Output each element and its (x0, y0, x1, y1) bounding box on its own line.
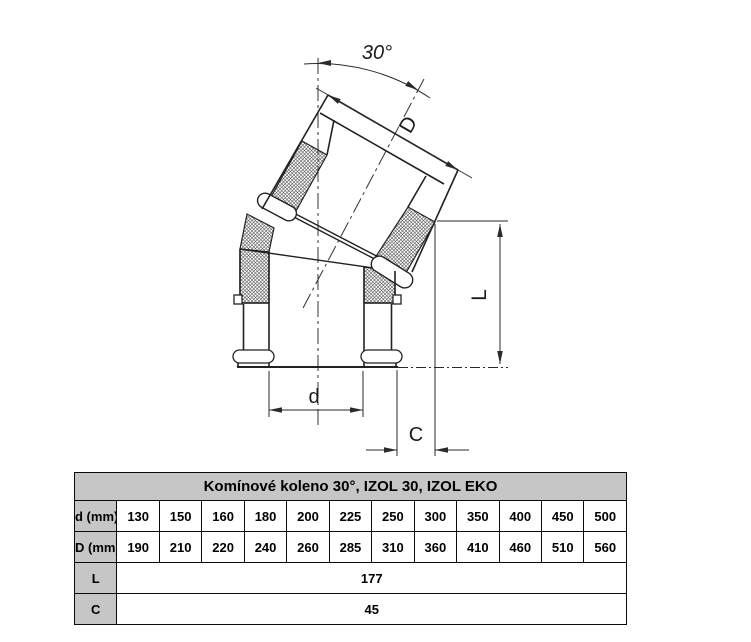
upper-miter-seam-line1 (288, 210, 388, 262)
table-cell: 360 (414, 532, 456, 563)
dimension-angle (304, 64, 430, 98)
table-cell: 150 (159, 501, 201, 532)
left-crimp-bump (234, 295, 242, 304)
elbow-technical-drawing: 30° D L d C (0, 0, 751, 470)
outer-diameter-label: D (395, 112, 423, 137)
table-cell: 350 (457, 501, 499, 532)
offset-label: C (409, 424, 423, 446)
angle-arrow-left (318, 60, 331, 66)
upper-inner-end (320, 113, 444, 184)
page: { "drawing": { "angle_label": "30°", "di… (0, 0, 751, 642)
bottom-right-bead (361, 350, 402, 363)
l-arrow-down (497, 351, 503, 364)
row-label-d: d (mm) vnitřní průměr: (75, 501, 117, 532)
table-cell: 450 (541, 501, 583, 532)
table-cell: 560 (584, 532, 627, 563)
d-outer-arrow-left (328, 95, 341, 104)
table-row-length: L 177 (75, 563, 627, 594)
right-crimp-bump (393, 295, 401, 304)
table-row-inner-diameter: d (mm) vnitřní průměr: 130 150 160 180 2… (75, 501, 627, 532)
table-cell: 285 (329, 532, 371, 563)
row-label-D: D (mm) vnější průměr: (75, 532, 117, 563)
l-arrow-up (497, 224, 503, 237)
angle-arc (304, 64, 430, 98)
table-cell: 225 (329, 501, 371, 532)
bottom-left-bead (233, 350, 274, 363)
table-cell: 210 (159, 532, 201, 563)
table-cell: 400 (499, 501, 541, 532)
c-arrow-right (435, 447, 448, 453)
table-cell: 190 (117, 532, 159, 563)
table-row-offset: C 45 (75, 594, 627, 625)
table-cell: 260 (287, 532, 329, 563)
d-arrow-left (269, 407, 282, 413)
lower-left-wall (240, 249, 269, 303)
length-value: 177 (117, 563, 627, 594)
table-cell: 200 (287, 501, 329, 532)
table-cell: 160 (202, 501, 244, 532)
table-row-outer-diameter: D (mm) vnější průměr: 190 210 220 240 26… (75, 532, 627, 563)
table-cell: 410 (457, 532, 499, 563)
table-title: Komínové koleno 30°, IZOL 30, IZOL EKO (75, 473, 627, 501)
d-arrow-right (350, 407, 363, 413)
table-cell: 240 (244, 532, 286, 563)
table-cell: 220 (202, 532, 244, 563)
table-cell: 300 (414, 501, 456, 532)
offset-value: 45 (117, 594, 627, 625)
upper-right-inner-edge (408, 176, 426, 207)
upper-left-inner-edge (327, 120, 334, 155)
length-label: L (468, 289, 491, 301)
row-label-L: L (75, 563, 117, 594)
table-cell: 310 (372, 532, 414, 563)
inner-diameter-label: d (308, 386, 319, 408)
table-cell: 180 (244, 501, 286, 532)
table-cell: 510 (541, 532, 583, 563)
table-cell: 130 (117, 501, 159, 532)
row-label-C: C (75, 594, 117, 625)
angle-arrow-right (405, 81, 418, 90)
d-outer-arrow-right (445, 161, 458, 170)
angle-label: 30° (362, 42, 392, 64)
table-cell: 500 (584, 501, 627, 532)
table-cell: 460 (499, 532, 541, 563)
dimension-arrows-C (384, 447, 448, 453)
table-cell: 250 (372, 501, 414, 532)
middle-left-wall (240, 214, 274, 252)
spec-table: Komínové koleno 30°, IZOL 30, IZOL EKO d… (74, 472, 627, 625)
c-arrow-left (384, 447, 397, 453)
table-title-row: Komínové koleno 30°, IZOL 30, IZOL EKO (75, 473, 627, 501)
